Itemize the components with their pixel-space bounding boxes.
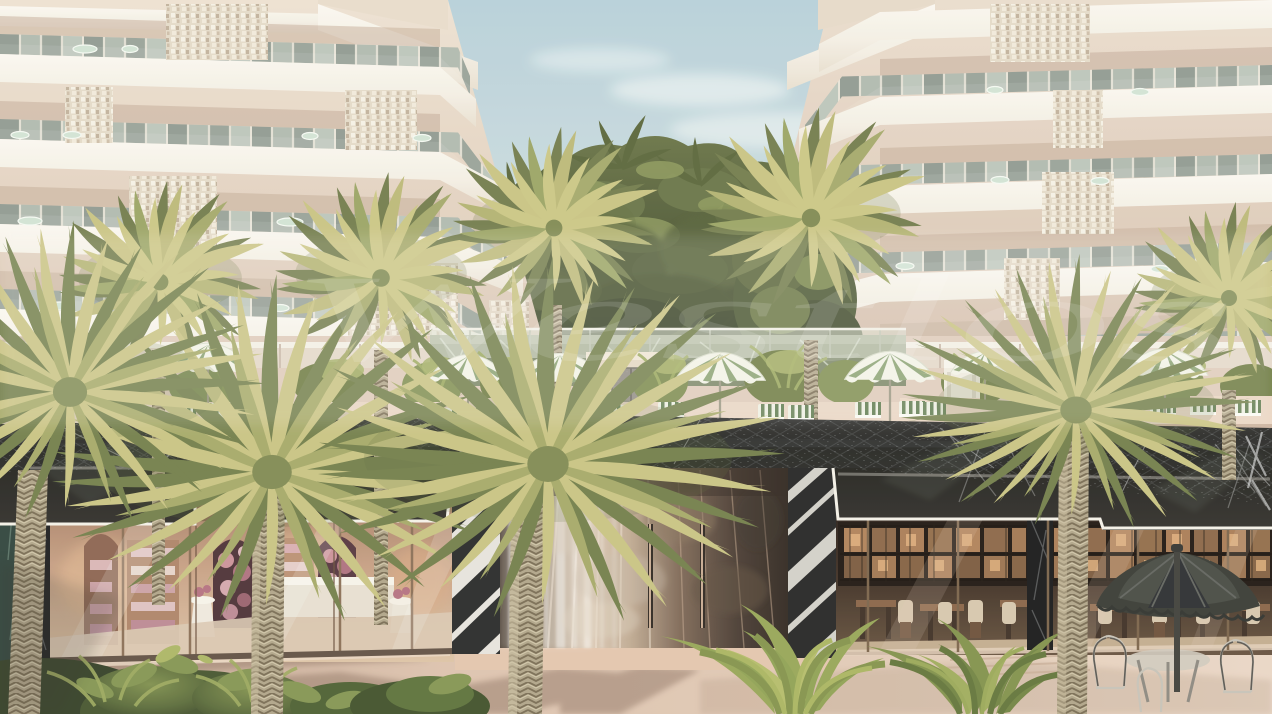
svg-text:Westlos: Westlos <box>286 250 1236 387</box>
